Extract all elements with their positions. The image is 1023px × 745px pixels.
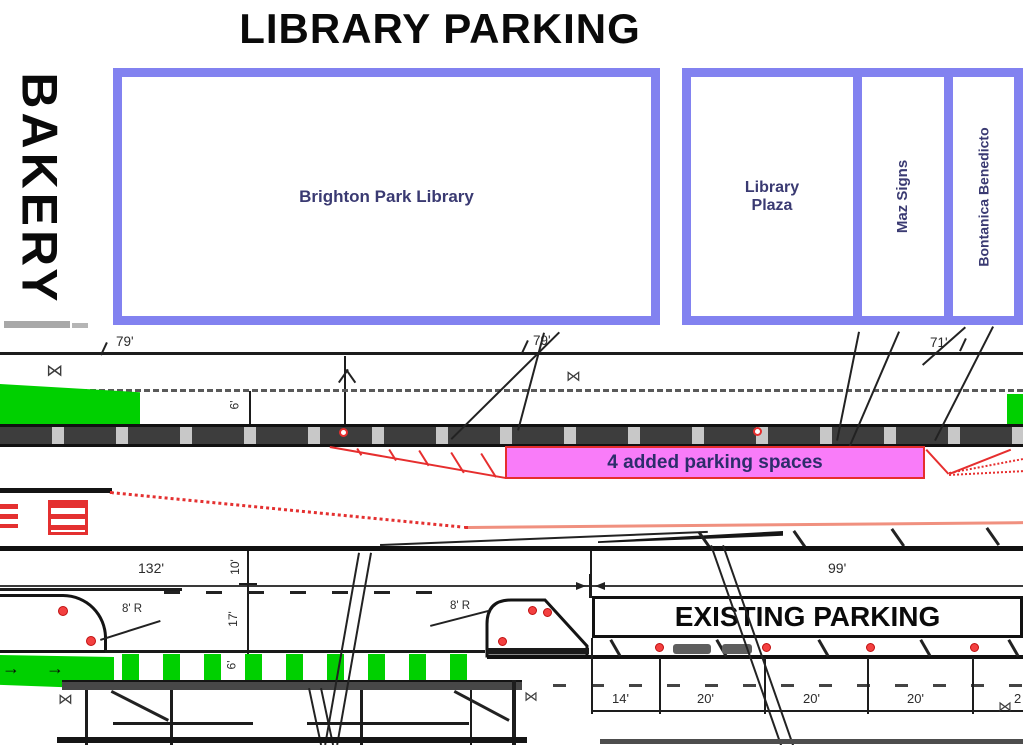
hatch-symbol: ⋈ xyxy=(998,699,1012,713)
pink-lane-line xyxy=(468,521,1023,529)
bottom-edge-line xyxy=(57,737,527,743)
hatch-symbol: ⋈ xyxy=(524,689,538,703)
site-plan: LIBRARY PARKING BAKERY Brighton Park Lib… xyxy=(0,0,1023,745)
meter-dot xyxy=(970,643,979,652)
dim-20b: 20' xyxy=(803,691,820,706)
dim-20-partial: 2 xyxy=(1014,691,1021,706)
bakery-label: BAKERY xyxy=(11,72,69,305)
dim-arrow-left xyxy=(576,582,586,590)
bakery-underline xyxy=(4,321,70,328)
dim-line-132-99 xyxy=(0,585,1023,587)
parking-strip xyxy=(0,424,1023,447)
meter-dot xyxy=(753,427,762,436)
building-library-plaza: Library Plaza xyxy=(682,68,862,325)
building-bontanica-benedicto: Bontanica Benedicto xyxy=(944,68,1023,325)
section-marker-icon xyxy=(345,369,356,383)
building-label: Maz Signs xyxy=(894,160,911,233)
existing-parking-box: EXISTING PARKING xyxy=(592,596,1023,638)
meter-dot xyxy=(866,643,875,652)
lane-arrow: → xyxy=(46,658,64,679)
meter-dot xyxy=(339,428,348,437)
bakery-label-wrap: BAKERY xyxy=(0,50,80,328)
curb-gray-dash xyxy=(72,323,88,328)
building-label: Bontanica Benedicto xyxy=(976,127,992,266)
radius-leader xyxy=(430,610,488,626)
dashed-guide-line xyxy=(553,684,1023,687)
existing-box-edge-extension xyxy=(590,551,592,598)
meter-dot xyxy=(762,643,771,652)
building-maz-signs: Maz Signs xyxy=(853,68,953,325)
radius-leader xyxy=(100,620,161,640)
stall-dim-tick xyxy=(659,658,661,714)
red-crosswalk-symbol xyxy=(48,500,88,535)
building-brighton-park-library: Brighton Park Library xyxy=(113,68,660,325)
projection-line xyxy=(922,327,966,366)
curb-point-dot xyxy=(498,637,507,646)
stall-dim-line xyxy=(592,710,1023,712)
dim-17: 17' xyxy=(226,611,240,627)
lane-arrow: → xyxy=(2,658,20,679)
red-fan-line xyxy=(926,449,950,475)
dim-99: 99' xyxy=(828,560,846,576)
structure-beam xyxy=(307,722,469,725)
dim-tick xyxy=(959,338,967,352)
dim-20a: 20' xyxy=(697,691,714,706)
grass-strip-right xyxy=(1007,394,1023,425)
meter-dot xyxy=(655,643,664,652)
bike-lane-top-line xyxy=(105,650,485,653)
red-hatch-tick xyxy=(388,449,397,461)
taper-tick xyxy=(986,527,1000,546)
hatch-symbol: ⋈ xyxy=(566,369,581,384)
curb-point-dot xyxy=(528,606,537,615)
dim-79-left: 79' xyxy=(116,334,134,349)
page-title: LIBRARY PARKING xyxy=(160,5,720,53)
existing-parking-label: EXISTING PARKING xyxy=(675,601,941,633)
stall-dim-tick xyxy=(867,658,869,714)
parked-car xyxy=(673,644,711,654)
dim-20c: 20' xyxy=(907,691,924,706)
dim-line-6-upper xyxy=(249,391,251,425)
street-centerline xyxy=(0,389,1023,392)
red-marking-fragment xyxy=(0,504,18,528)
building-label: Library Plaza xyxy=(736,179,808,215)
structure-beam xyxy=(113,722,253,725)
curb-point-dot xyxy=(543,608,552,617)
dim-14: 14' xyxy=(612,691,629,706)
north-curb-line xyxy=(0,352,1023,355)
lane-line-dashed xyxy=(164,591,458,594)
hatch-symbol: ⋈ xyxy=(46,362,63,379)
taper-tick xyxy=(891,528,905,547)
lane-line-solid xyxy=(0,588,182,591)
curb-bar-long xyxy=(62,680,522,690)
structure-post xyxy=(512,680,516,745)
structure-brace xyxy=(111,690,169,721)
dim-6-upper: 6' xyxy=(227,401,241,410)
curb-point-dot xyxy=(86,636,96,646)
added-parking-label: 4 added parking spaces xyxy=(607,452,822,474)
building-label: Brighton Park Library xyxy=(299,187,474,207)
added-parking-zone: 4 added parking spaces xyxy=(505,446,925,479)
curb-point-dot xyxy=(58,606,68,616)
south-lane-line xyxy=(0,546,1023,551)
lane-edge-segment xyxy=(0,488,112,493)
dim-10: 10' xyxy=(228,559,242,575)
stall-dim-tick xyxy=(972,658,974,714)
bottom-edge-line-right xyxy=(600,739,1023,744)
curb-bar xyxy=(487,648,589,654)
structure-brace xyxy=(454,690,510,721)
dim-arrow-right xyxy=(595,582,605,590)
red-dotted-taper xyxy=(110,491,469,529)
dim-132: 132' xyxy=(138,560,164,576)
hatch-symbol: ⋈ xyxy=(58,692,73,707)
radius-label-left: 8' R xyxy=(122,603,142,615)
parking-lane-bottom-line xyxy=(487,655,1023,659)
projection-line xyxy=(517,332,545,430)
stall-dim-tick xyxy=(591,638,593,714)
dim-htick xyxy=(239,583,257,585)
radius-label-right: 8' R xyxy=(450,600,470,612)
